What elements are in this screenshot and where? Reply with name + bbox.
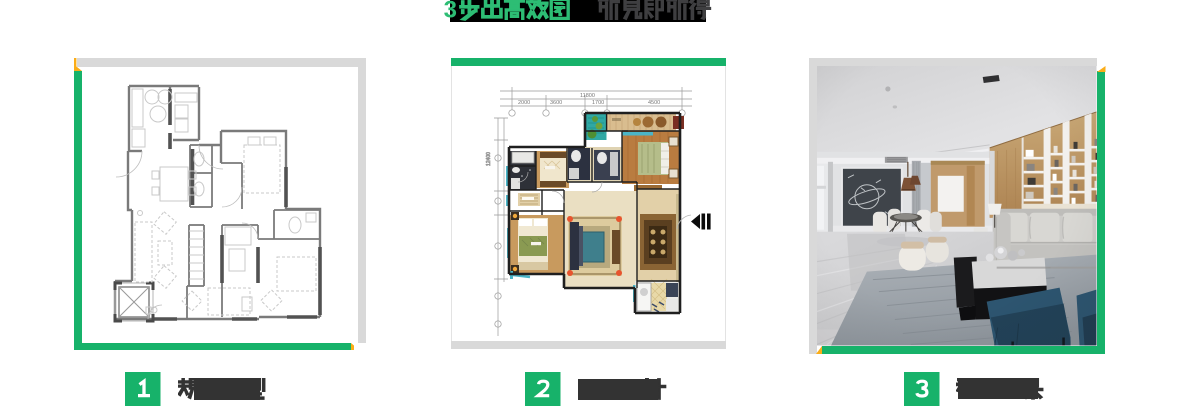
- svg-text:1700: 1700: [592, 100, 604, 106]
- svg-text:11800: 11800: [580, 93, 595, 99]
- svg-text:4500: 4500: [648, 100, 660, 106]
- svg-text:3: 3: [444, 0, 457, 24]
- svg-text:12400: 12400: [486, 152, 492, 166]
- svg-text:3600: 3600: [550, 100, 562, 106]
- svg-text:2000: 2000: [518, 100, 530, 106]
